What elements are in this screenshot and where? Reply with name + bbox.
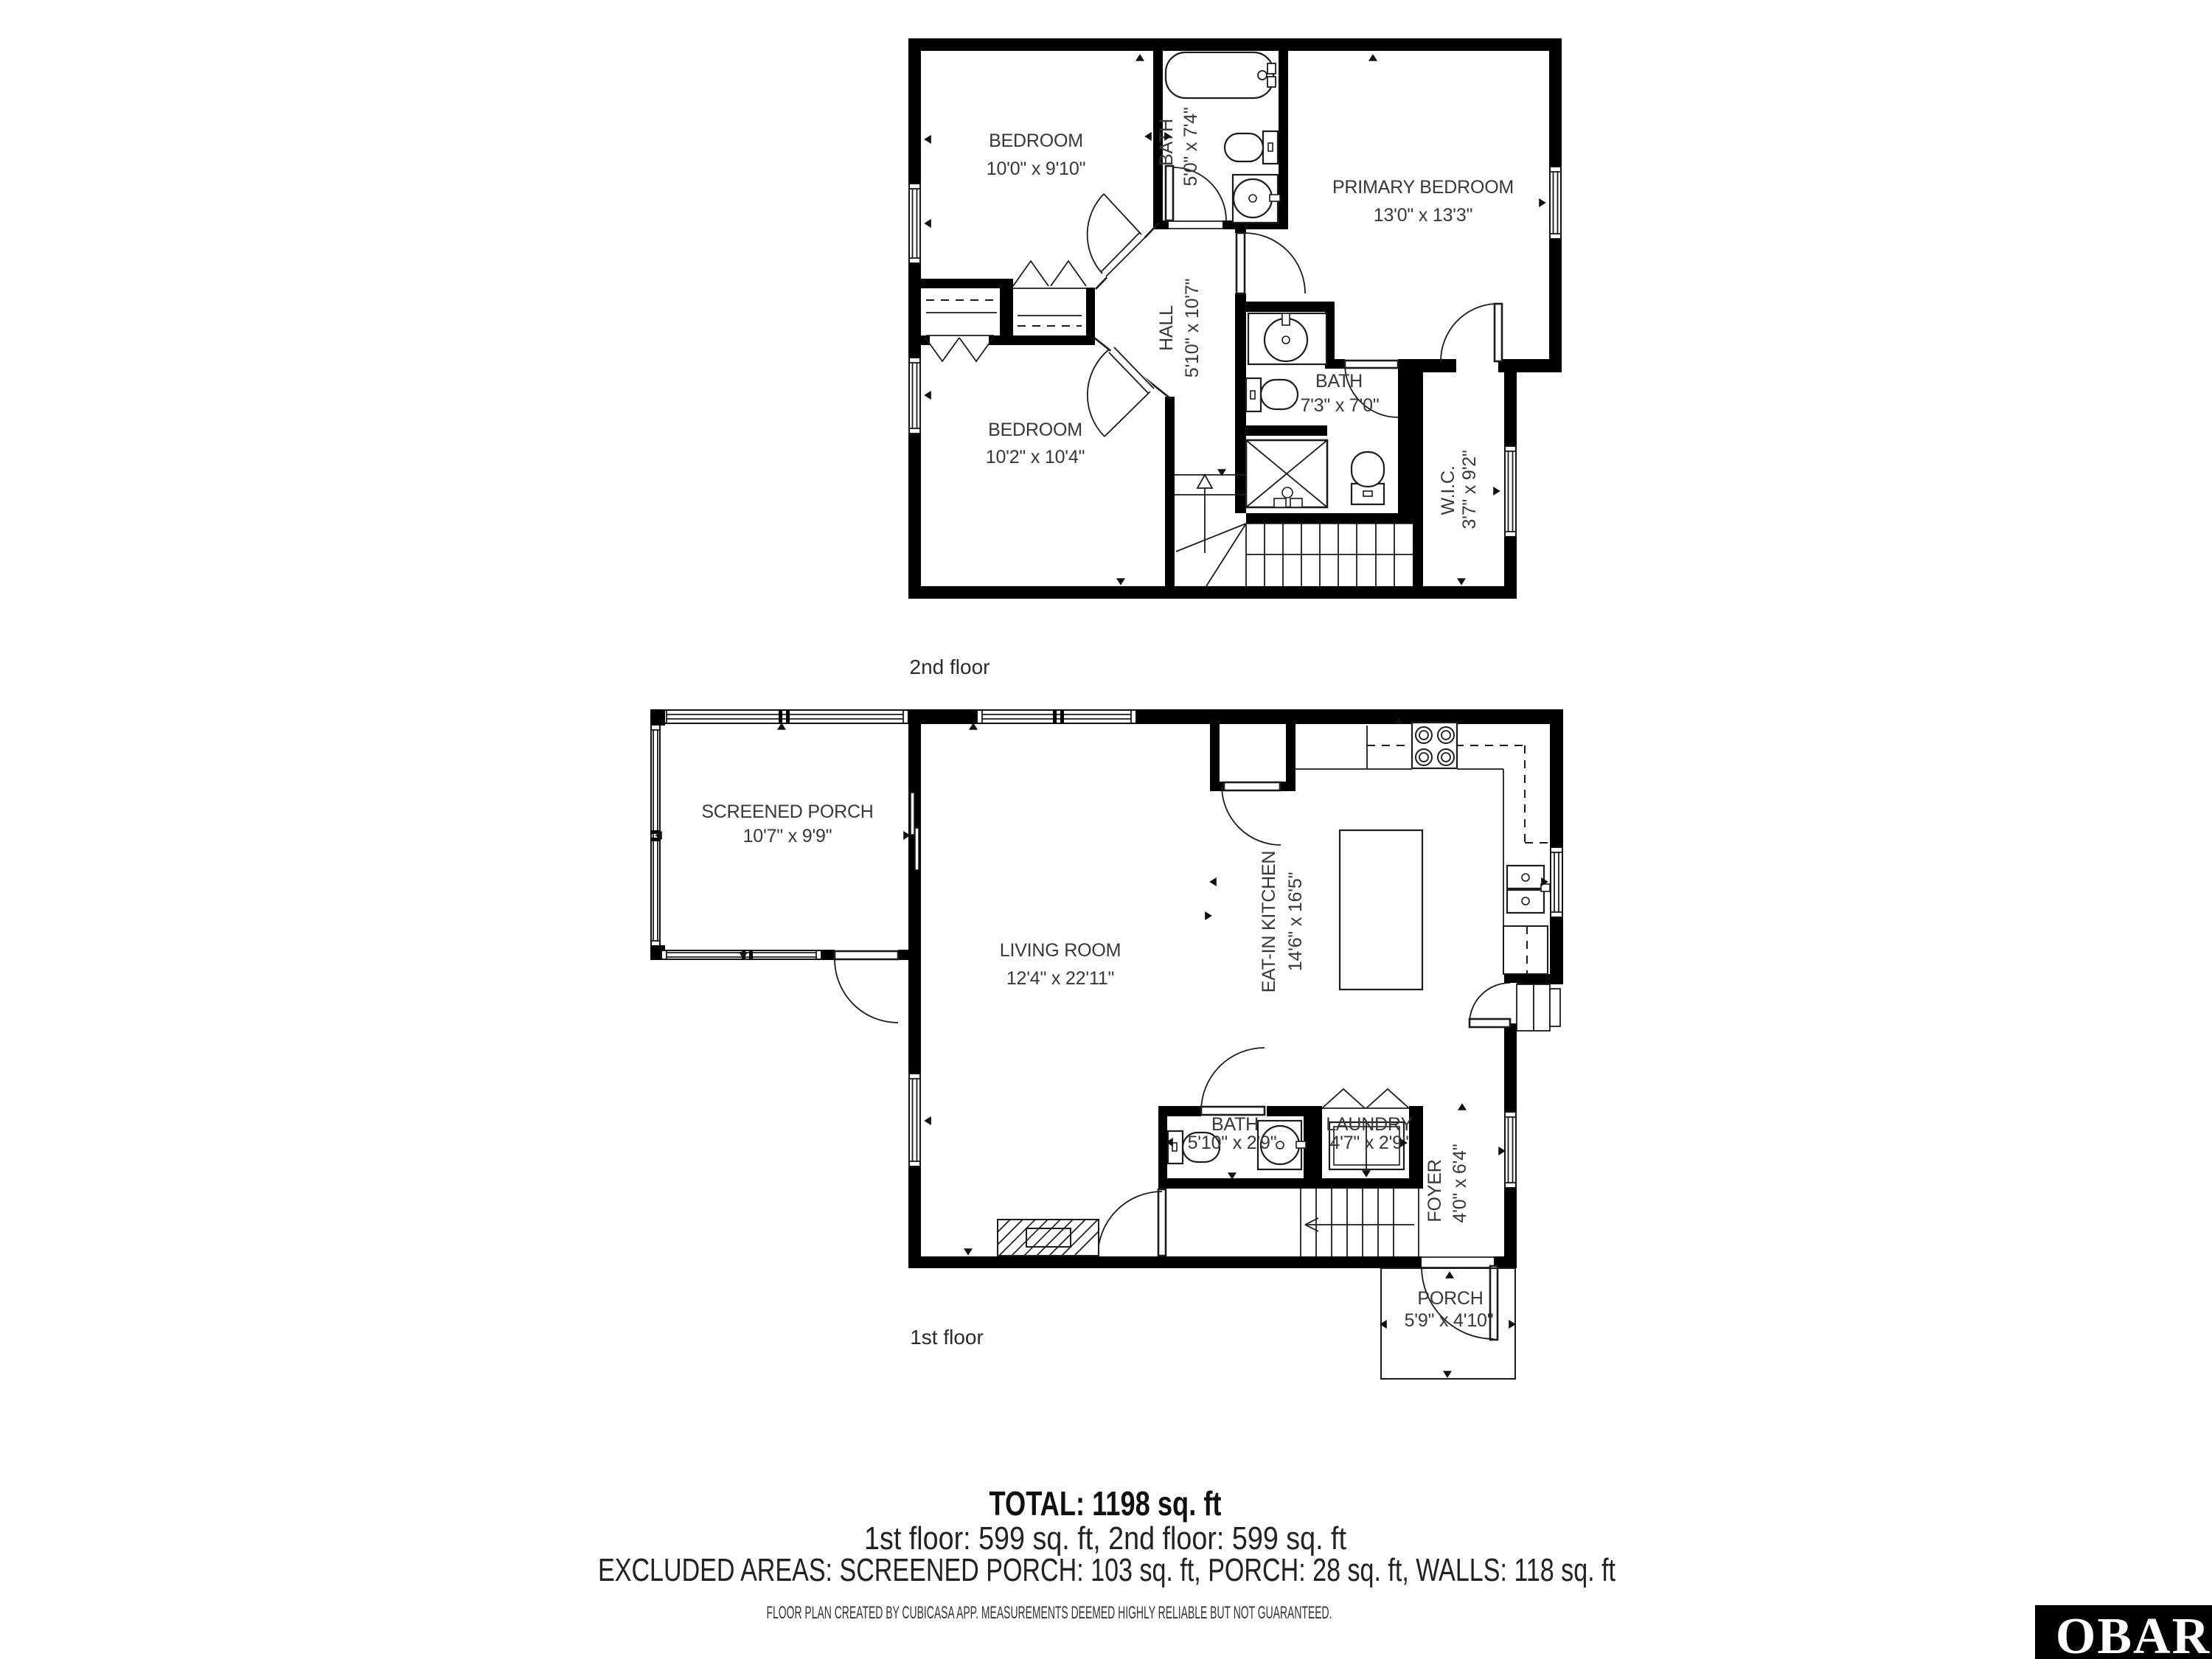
svg-text:BATH: BATH [1315,371,1363,392]
svg-text:BATH: BATH [1156,119,1177,166]
svg-text:12'4" x 22'11": 12'4" x 22'11" [1006,968,1114,989]
svg-text:13'0" x 13'3": 13'0" x 13'3" [1374,205,1473,226]
svg-text:10'2" x 10'4": 10'2" x 10'4" [986,447,1085,467]
svg-text:10'0" x 9'10": 10'0" x 9'10" [987,159,1086,179]
svg-text:7'3" x 7'0": 7'3" x 7'0" [1300,395,1379,416]
svg-text:EXCLUDED AREAS: SCREENED PORCH: EXCLUDED AREAS: SCREENED PORCH: 103 sq. … [598,1552,1615,1588]
svg-text:FOYER: FOYER [1425,1159,1445,1222]
svg-text:5'10" x 10'7": 5'10" x 10'7" [1182,279,1203,378]
svg-text:1st floor: 599 sq. ft, 2nd flo: 1st floor: 599 sq. ft, 2nd floor: 599 sq… [864,1520,1346,1557]
svg-text:BEDROOM: BEDROOM [988,420,1082,440]
svg-text:LIVING ROOM: LIVING ROOM [1000,940,1121,961]
svg-text:FLOOR PLAN CREATED BY CUBICASA: FLOOR PLAN CREATED BY CUBICASA APP. MEAS… [767,1603,1332,1623]
svg-text:LAUNDRY: LAUNDRY [1326,1114,1413,1135]
svg-text:SCREENED PORCH: SCREENED PORCH [701,801,873,822]
svg-text:3'7" x 9'2": 3'7" x 9'2" [1459,450,1480,529]
svg-text:4'0" x 6'4": 4'0" x 6'4" [1450,1144,1470,1222]
svg-text:4'7" x 2'9": 4'7" x 2'9" [1329,1133,1408,1153]
svg-text:EAT-IN KITCHEN: EAT-IN KITCHEN [1259,851,1279,993]
svg-text:PORCH: PORCH [1417,1288,1483,1309]
svg-text:BEDROOM: BEDROOM [989,131,1083,151]
svg-text:5'9" x 4'10": 5'9" x 4'10" [1405,1310,1494,1331]
svg-text:OBAR: OBAR [2056,1608,2211,1659]
svg-text:5'0" x 7'4": 5'0" x 7'4" [1180,107,1201,186]
svg-text:14'6" x 16'5": 14'6" x 16'5" [1285,872,1306,972]
svg-text:HALL: HALL [1156,305,1177,351]
svg-text:PRIMARY BEDROOM: PRIMARY BEDROOM [1332,177,1514,198]
svg-text:10'7" x 9'9": 10'7" x 9'9" [743,826,832,846]
svg-text:BATH: BATH [1211,1114,1259,1135]
svg-text:2nd floor: 2nd floor [910,655,990,678]
svg-text:TOTAL: 1198 sq. ft: TOTAL: 1198 sq. ft [990,1484,1222,1523]
svg-text:5'10" x 2'9": 5'10" x 2'9" [1188,1133,1277,1153]
svg-text:1st floor: 1st floor [910,1326,984,1349]
svg-text:W.I.C.: W.I.C. [1438,466,1458,515]
